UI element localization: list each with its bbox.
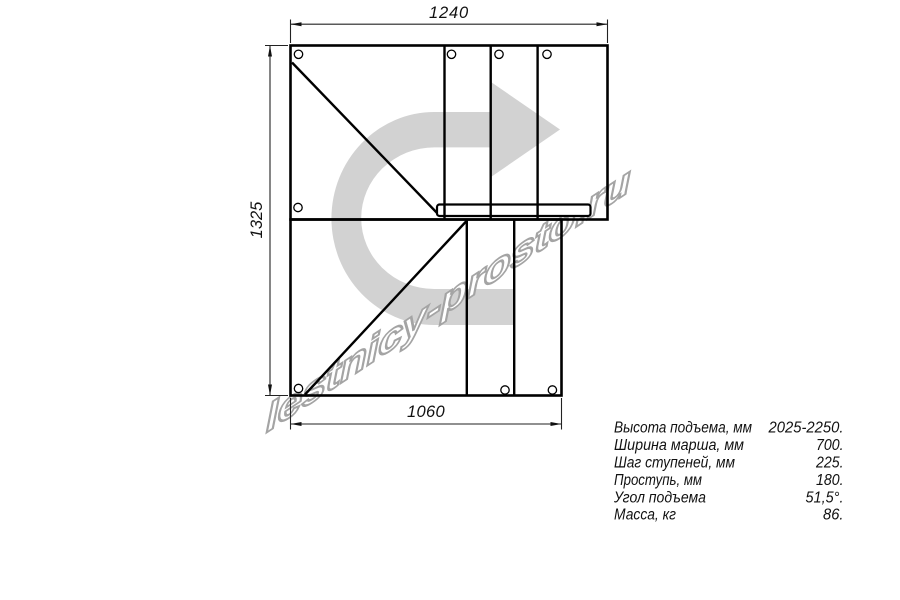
svg-text:Высота подъема, мм: Высота подъема, мм (614, 420, 752, 437)
svg-text:lestnicy-prosto.ru: lestnicy-prosto.ru (266, 157, 631, 442)
svg-text:51,5°.: 51,5°. (806, 489, 844, 506)
svg-text:225.: 225. (815, 455, 843, 472)
svg-text:86.: 86. (823, 507, 844, 524)
svg-text:1060: 1060 (407, 403, 445, 421)
svg-text:Угол подъема: Угол подъема (613, 489, 706, 506)
svg-text:Масса, кг: Масса, кг (614, 507, 676, 524)
svg-text:1240: 1240 (429, 4, 469, 22)
svg-text:180.: 180. (816, 472, 844, 489)
svg-text:Шаг ступеней, мм: Шаг ступеней, мм (614, 455, 735, 472)
svg-text:700.: 700. (816, 437, 844, 454)
svg-text:2025-2250.: 2025-2250. (768, 420, 844, 437)
svg-text:1325: 1325 (248, 201, 266, 239)
svg-text:Проступь, мм: Проступь, мм (614, 472, 702, 489)
svg-text:Ширина марша, мм: Ширина марша, мм (614, 437, 744, 454)
